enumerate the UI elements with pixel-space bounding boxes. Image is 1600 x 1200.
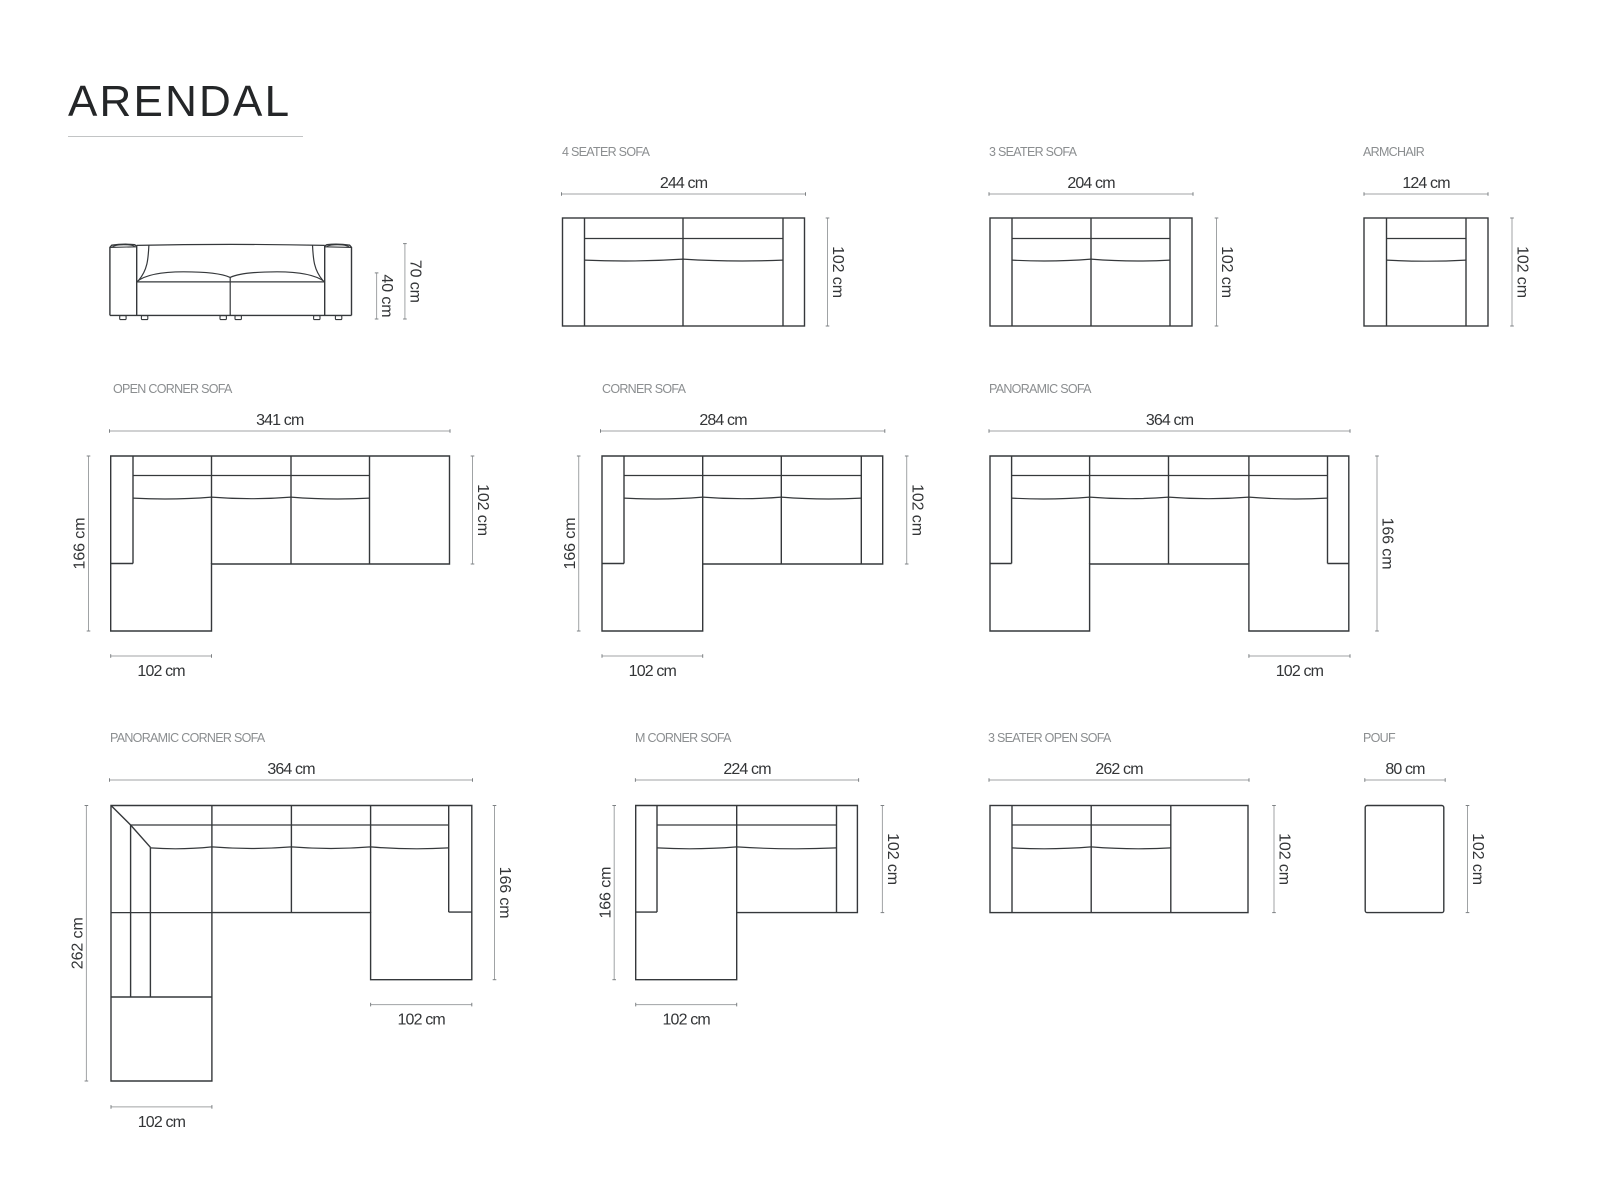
svg-text:102 cm: 102 cm — [474, 484, 491, 536]
svg-text:244 cm: 244 cm — [660, 175, 708, 192]
svg-text:M CORNER SOFA: M CORNER SOFA — [635, 731, 732, 745]
svg-text:364 cm: 364 cm — [1146, 412, 1194, 429]
svg-text:PANORAMIC CORNER SOFA: PANORAMIC CORNER SOFA — [110, 731, 266, 745]
svg-text:102 cm: 102 cm — [663, 1012, 711, 1029]
svg-text:ARENDAL: ARENDAL — [68, 77, 291, 126]
svg-text:102 cm: 102 cm — [884, 833, 901, 885]
svg-text:166 cm: 166 cm — [72, 518, 89, 570]
svg-text:102 cm: 102 cm — [398, 1012, 446, 1029]
svg-text:ARMCHAIR: ARMCHAIR — [1363, 145, 1425, 159]
svg-text:102 cm: 102 cm — [1218, 246, 1235, 298]
svg-text:70 cm: 70 cm — [407, 260, 424, 303]
svg-text:262 cm: 262 cm — [70, 917, 87, 969]
svg-text:3 SEATER SOFA: 3 SEATER SOFA — [989, 145, 1078, 159]
svg-text:102 cm: 102 cm — [138, 1114, 186, 1131]
svg-text:CORNER SOFA: CORNER SOFA — [602, 382, 687, 396]
svg-text:102 cm: 102 cm — [629, 663, 677, 680]
svg-text:PANORAMIC SOFA: PANORAMIC SOFA — [989, 382, 1092, 396]
svg-text:POUF: POUF — [1363, 731, 1396, 745]
svg-text:102 cm: 102 cm — [1276, 833, 1293, 885]
svg-text:4 SEATER SOFA: 4 SEATER SOFA — [562, 145, 651, 159]
svg-text:3 SEATER OPEN SOFA: 3 SEATER OPEN SOFA — [988, 731, 1112, 745]
svg-text:102 cm: 102 cm — [1514, 246, 1531, 298]
svg-text:364 cm: 364 cm — [267, 761, 315, 778]
svg-text:166 cm: 166 cm — [597, 867, 614, 919]
svg-text:OPEN CORNER SOFA: OPEN CORNER SOFA — [113, 382, 233, 396]
svg-text:166 cm: 166 cm — [496, 867, 513, 919]
svg-text:204 cm: 204 cm — [1067, 175, 1115, 192]
svg-text:341 cm: 341 cm — [256, 412, 304, 429]
svg-text:102 cm: 102 cm — [137, 663, 185, 680]
svg-text:124 cm: 124 cm — [1402, 175, 1450, 192]
svg-text:102 cm: 102 cm — [1469, 833, 1486, 885]
svg-text:262 cm: 262 cm — [1095, 761, 1143, 778]
svg-text:40 cm: 40 cm — [378, 274, 395, 317]
svg-text:102 cm: 102 cm — [908, 484, 925, 536]
svg-text:102 cm: 102 cm — [1276, 663, 1324, 680]
svg-text:284 cm: 284 cm — [699, 412, 747, 429]
svg-text:166 cm: 166 cm — [562, 518, 579, 570]
svg-text:224 cm: 224 cm — [723, 761, 771, 778]
svg-text:80 cm: 80 cm — [1385, 761, 1425, 778]
svg-text:166 cm: 166 cm — [1379, 518, 1396, 570]
svg-text:102 cm: 102 cm — [829, 246, 846, 298]
